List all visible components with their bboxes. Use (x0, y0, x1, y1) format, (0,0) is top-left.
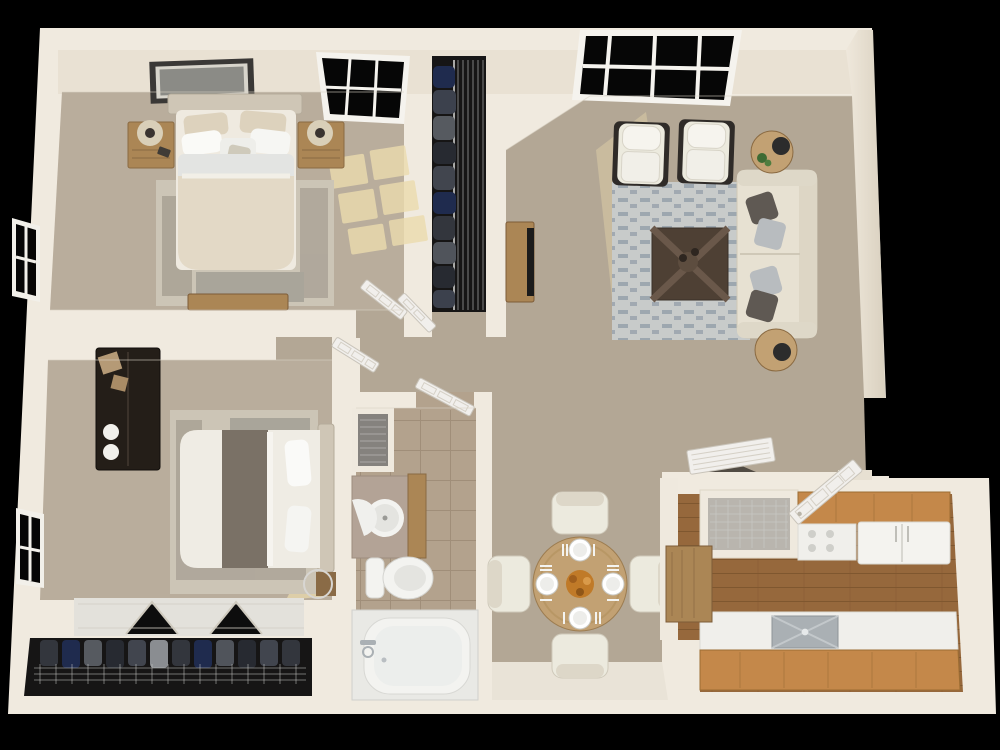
centerpiece (566, 570, 594, 598)
accent-chair-1 (612, 121, 670, 187)
gray-blanket (222, 430, 268, 568)
table-lamp (773, 343, 791, 361)
decor-jar (103, 444, 119, 460)
bed-2 (180, 424, 334, 572)
bedroom-1-left-window (12, 218, 40, 302)
pillow (284, 439, 312, 487)
tub-spout (360, 640, 376, 645)
linen-closet (352, 408, 394, 472)
bedroom-2-left-window (16, 508, 44, 588)
vanity-cabinet (408, 474, 426, 558)
pillow (284, 505, 312, 553)
headboard (318, 424, 334, 572)
duvet (178, 176, 294, 270)
base-cabinets (700, 650, 960, 690)
bedroom-2-doorway (276, 337, 332, 361)
side-table-top (751, 131, 793, 173)
sofa (737, 170, 817, 338)
nightstand-left (128, 120, 174, 168)
range (798, 524, 856, 560)
tv-console (506, 222, 534, 302)
toilet (366, 557, 433, 599)
vanity (352, 474, 426, 558)
dining-chair-left (488, 556, 530, 612)
accent-chair-2 (677, 119, 735, 185)
decor-jar (103, 424, 119, 440)
bifold-closet-doors (74, 598, 304, 636)
floor-plan-canvas (0, 0, 1000, 750)
bathtub (352, 610, 478, 700)
armoire (96, 348, 160, 470)
pantry (700, 490, 798, 558)
hanging-clothes (433, 66, 456, 308)
living-room-window (572, 30, 742, 106)
closet-doorway (432, 312, 486, 338)
refrigerator (858, 522, 950, 564)
bar-top (666, 546, 712, 622)
side-table-bottom (755, 329, 797, 371)
bedroom-1-window (316, 52, 410, 124)
dining-chair-bottom (552, 634, 608, 678)
sofa-back (799, 176, 817, 332)
sink-drain (802, 629, 809, 636)
bed-1 (168, 94, 302, 270)
table-lamp (772, 137, 790, 155)
sink-counter (700, 612, 958, 650)
television (527, 228, 534, 296)
floor-plan-stage (0, 0, 1000, 750)
toilet-tank (366, 558, 384, 598)
coffee-table (652, 228, 728, 300)
tub-drain (382, 658, 387, 663)
nightstand-right (298, 120, 344, 168)
foot-bench (188, 294, 288, 310)
dining-chair-top (552, 492, 608, 534)
entry-doorway-opening (864, 398, 891, 476)
